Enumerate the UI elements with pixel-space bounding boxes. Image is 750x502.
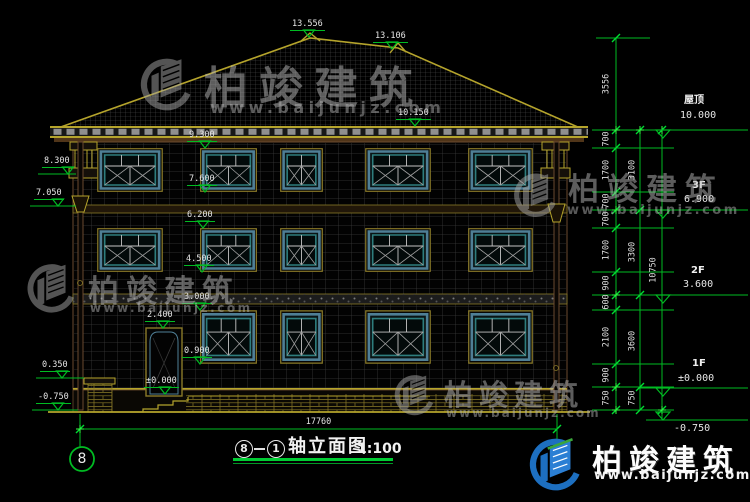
porch-ledge — [84, 378, 115, 384]
string-course-3f — [73, 205, 567, 213]
dim-700-a: 700 — [603, 131, 612, 146]
dim-3600: 3600 — [629, 331, 638, 351]
level-grade-value: -0.750 — [674, 423, 710, 434]
dim-3300: 3300 — [629, 242, 638, 262]
axis-bubble-8: 8 — [73, 451, 91, 467]
porch-pier — [88, 384, 112, 412]
elev-mark-8300: 8.300 — [42, 156, 72, 168]
level-roof-label: 屋顶 — [684, 95, 704, 106]
elev-mark-0900: 0.900 — [182, 346, 212, 358]
title-axis-end: 1 — [267, 440, 285, 458]
title-axis-start: 8 — [235, 440, 253, 458]
elev-mark-neg750-l: -0.750 — [36, 392, 71, 404]
cad-elevation-sheet: 13.556 13.106 10.150 9.300 7.600 6.200 4… — [0, 0, 750, 502]
dim-total-width: 17760 — [296, 417, 341, 427]
brand-url: www.baijunjz.com — [594, 468, 750, 483]
level-2f-label: 2F — [691, 265, 705, 276]
window — [366, 149, 430, 192]
watermark-url: www.baijunjz.com — [90, 301, 253, 315]
watermark-logo-icon — [22, 258, 82, 316]
watermark-logo-icon — [508, 168, 564, 220]
dim-600: 600 — [603, 294, 612, 309]
dim-900-a: 900 — [603, 275, 612, 290]
title-underline-2 — [233, 463, 393, 464]
window — [281, 311, 323, 363]
watermark-logo-icon — [390, 370, 440, 418]
dim-750-b: 750 — [629, 390, 638, 405]
window — [281, 149, 323, 192]
dim-900-b: 900 — [603, 367, 612, 382]
dim-2100: 2100 — [603, 327, 612, 347]
elev-mark-4500: 4.500 — [184, 254, 214, 266]
window — [98, 229, 162, 272]
watermark-url: www.baijunjz.com — [210, 98, 445, 117]
dim-1700-b: 1700 — [603, 240, 612, 260]
elev-mark-13556: 13.556 — [290, 19, 325, 31]
eave-cornice — [50, 126, 588, 142]
window — [469, 311, 532, 363]
watermark-url: www.baijunjz.com — [567, 203, 740, 218]
windows-1f — [201, 311, 533, 363]
window — [366, 311, 430, 363]
dim-3556: 3556 — [603, 74, 612, 94]
watermark-logo-icon — [134, 52, 200, 114]
elev-mark-13106: 13.106 — [373, 31, 408, 43]
level-2f-value: 3.600 — [683, 279, 713, 290]
elev-mark-7600: 7.600 — [187, 174, 217, 186]
level-roof-value: 10.000 — [680, 110, 716, 121]
drawing-scale: 1:100 — [357, 441, 402, 457]
window — [98, 149, 162, 192]
window — [366, 229, 430, 272]
elev-mark-6200: 6.200 — [185, 210, 215, 222]
watermark-url: www.baijunjz.com — [446, 406, 601, 420]
window — [281, 229, 323, 272]
level-1f-label: 1F — [692, 358, 706, 369]
brand-logo-icon — [524, 432, 588, 494]
window — [469, 229, 532, 272]
dim-10750: 10750 — [650, 257, 659, 283]
elev-mark-zero: ±0.000 — [144, 376, 179, 388]
title-dash — [254, 448, 265, 450]
elev-mark-9300: 9.300 — [187, 130, 217, 142]
elev-mark-7050: 7.050 — [34, 188, 64, 200]
elev-mark-0350: 0.350 — [40, 360, 70, 372]
level-1f-value: ±0.000 — [678, 373, 714, 384]
title-underline — [233, 458, 393, 461]
dim-750-a: 750 — [603, 390, 612, 405]
drawing-title: 轴立面图 — [288, 437, 368, 457]
